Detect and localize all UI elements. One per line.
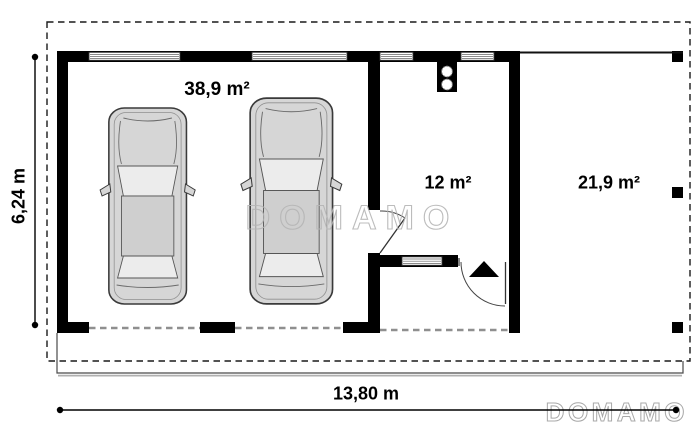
window-symbol-1 bbox=[89, 52, 180, 60]
window-symbol-storage-south bbox=[402, 257, 442, 266]
width-dimension-label: 13,80 m bbox=[333, 384, 399, 405]
garage-area-label: 38,9 m² bbox=[184, 79, 249, 101]
depth-dimension-label: 6,24 m bbox=[9, 168, 30, 224]
floor-plan-page: DOMAMO DOMAMO 38,9 m² 12 m² 21,9 m² 13,8… bbox=[0, 0, 700, 430]
wall-south-left-corner bbox=[57, 322, 89, 333]
opening-dashed-lines bbox=[89, 328, 509, 330]
floor-plan-drawing: DOMAMO DOMAMO bbox=[0, 0, 700, 430]
window-symbol-3 bbox=[380, 52, 413, 60]
wall-west bbox=[57, 51, 68, 333]
wall-interior-upper bbox=[368, 62, 380, 210]
entrance-arrow-icon bbox=[469, 261, 499, 277]
driveway-apron bbox=[57, 333, 683, 376]
car-left-top-view bbox=[100, 108, 195, 304]
window-symbol-2 bbox=[252, 52, 347, 60]
storage-area-label: 12 m² bbox=[424, 173, 471, 194]
carport-post-e bbox=[672, 187, 683, 198]
entry-door-symbol bbox=[459, 258, 506, 306]
watermark-center: DOMAMO bbox=[246, 199, 459, 237]
watermark-bottom-right: DOMAMO bbox=[546, 397, 688, 427]
wall-east bbox=[509, 51, 520, 333]
carport-post-se bbox=[672, 322, 683, 333]
window-symbol-4 bbox=[461, 52, 494, 60]
dimension-line-depth bbox=[32, 54, 38, 328]
wall-south-pier bbox=[200, 322, 235, 333]
carport-area-label: 21,9 m² bbox=[578, 173, 640, 194]
